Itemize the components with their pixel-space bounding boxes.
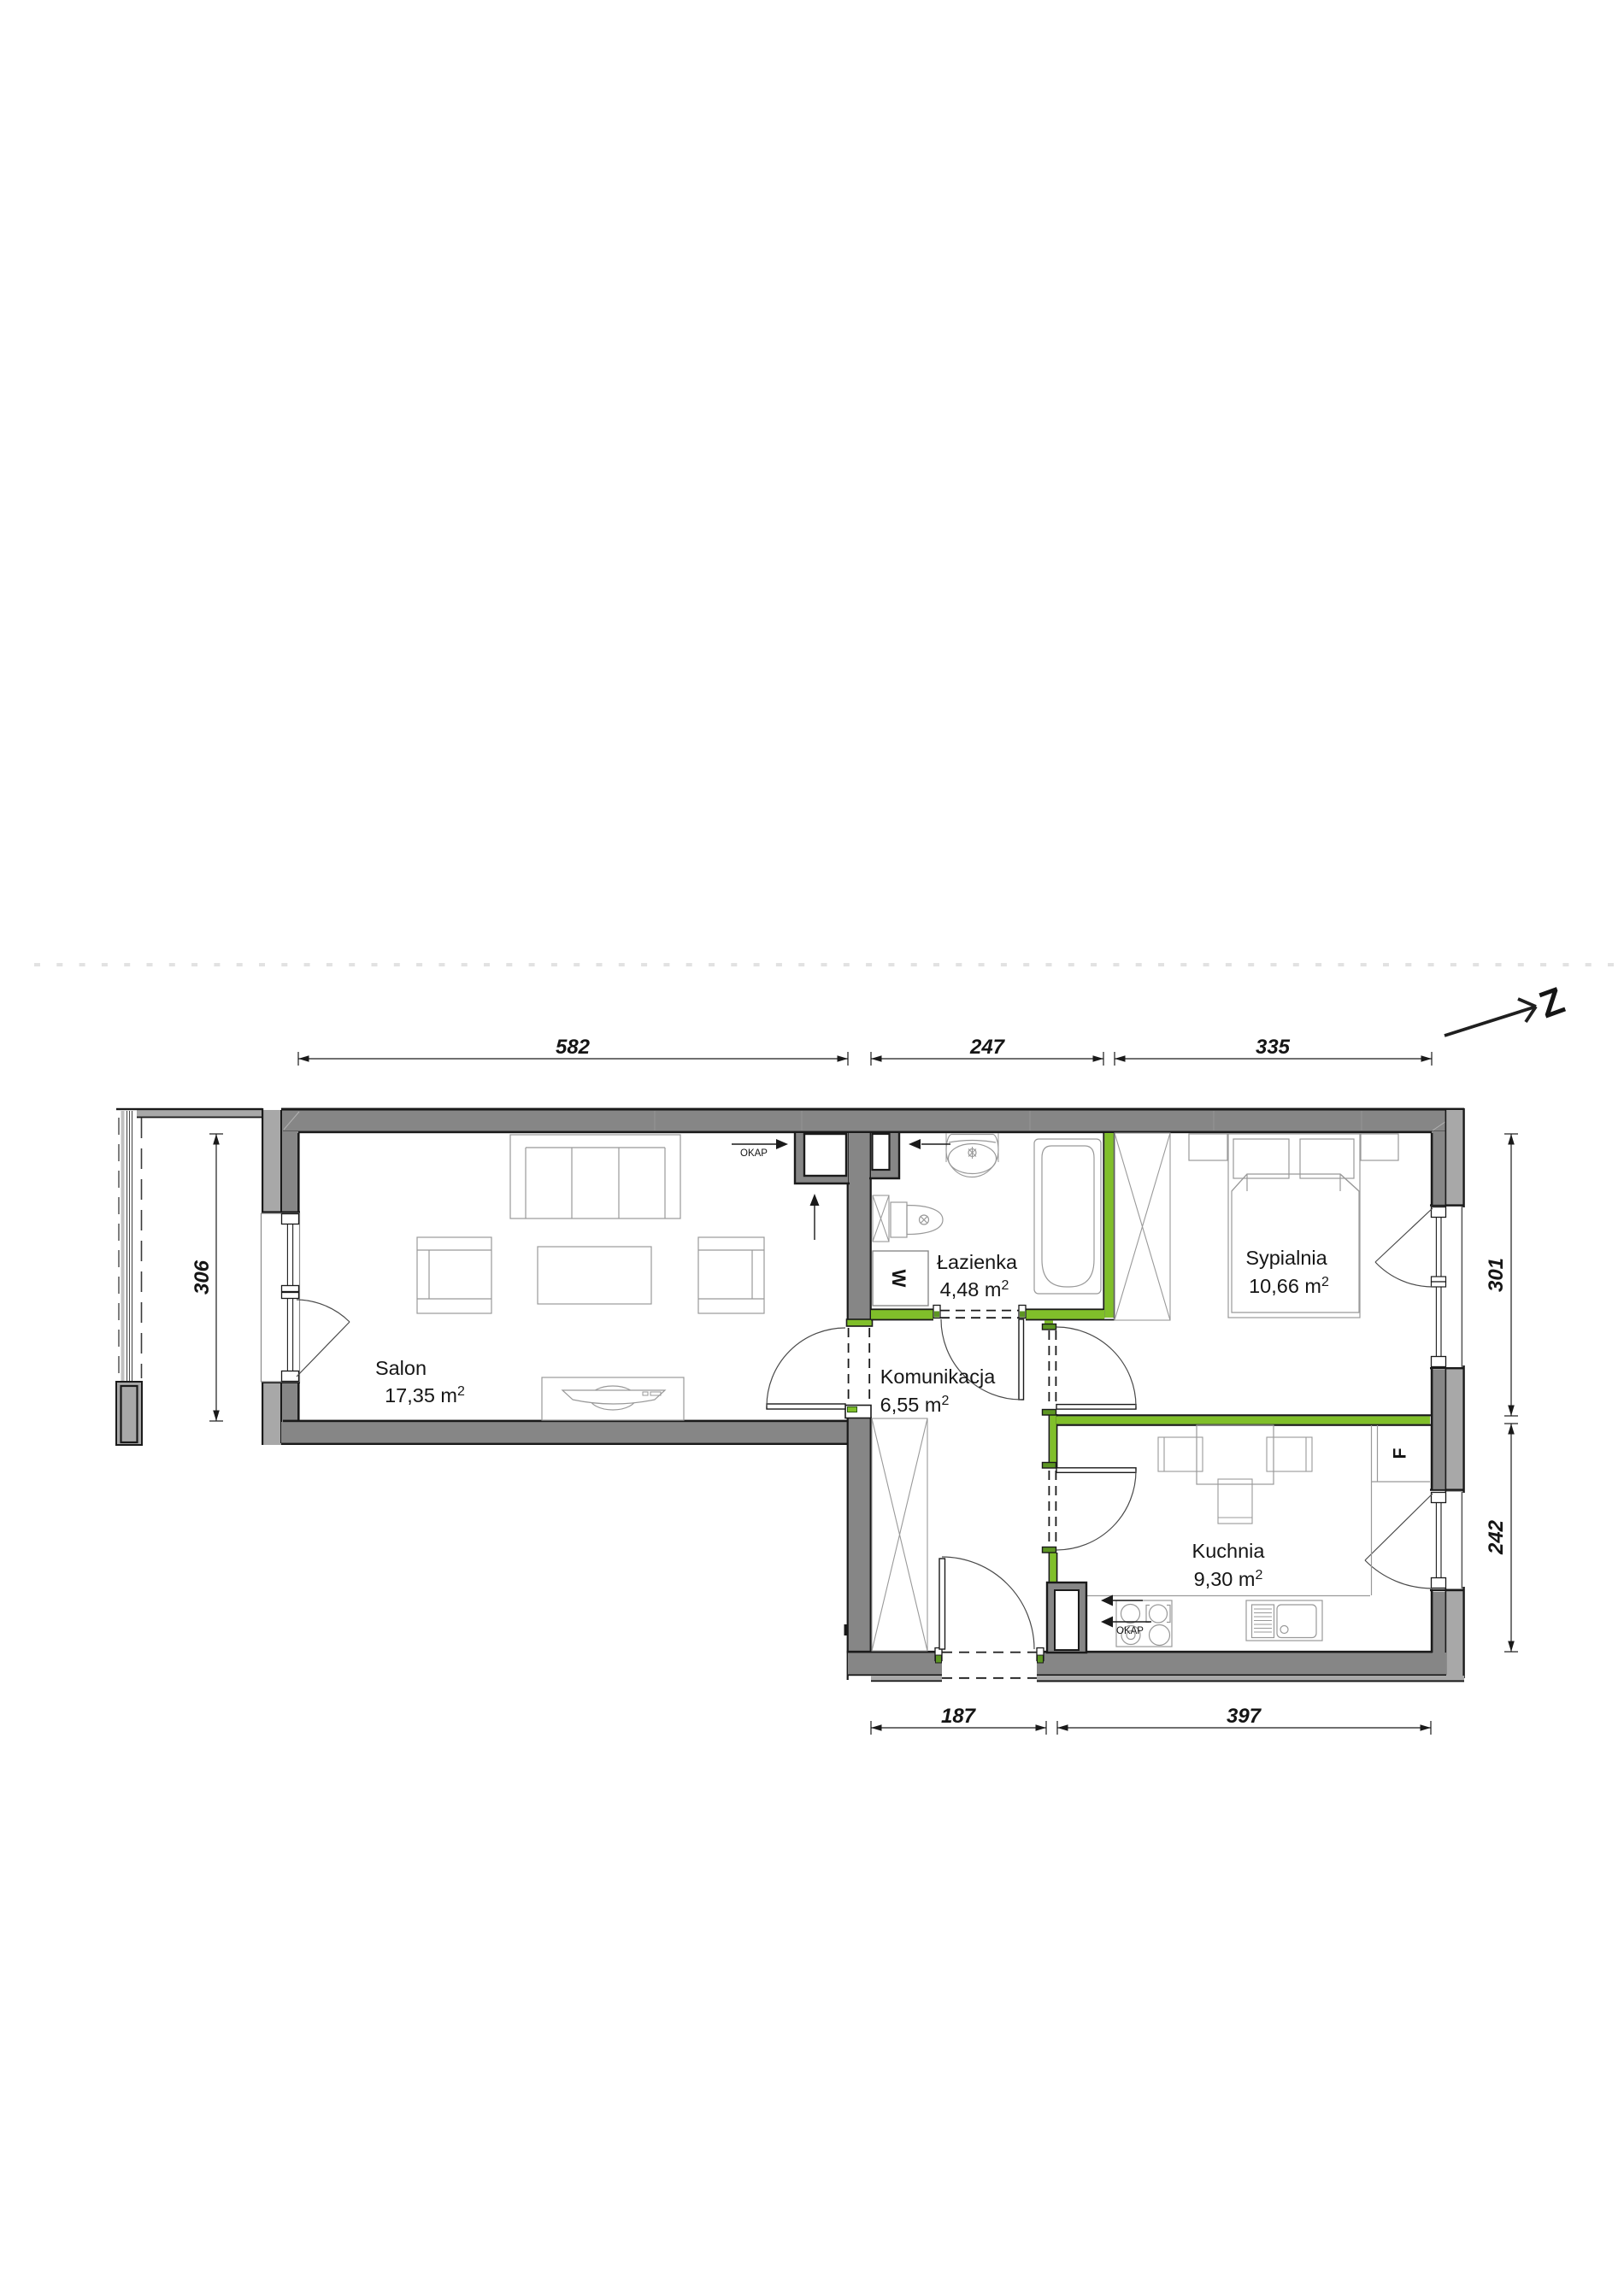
svg-text:OKAP: OKAP	[740, 1148, 768, 1159]
svg-text:Sypialnia: Sypialnia	[1245, 1247, 1327, 1269]
svg-text:OKAP: OKAP	[1116, 1626, 1144, 1636]
svg-text:Łazienka: Łazienka	[937, 1251, 1018, 1273]
svg-text:306: 306	[191, 1260, 214, 1295]
svg-text:Komunikacja: Komunikacja	[880, 1365, 996, 1388]
svg-text:247: 247	[969, 1036, 1006, 1059]
svg-text:10,66 m2: 10,66 m2	[1249, 1275, 1329, 1297]
svg-text:4,48 m2: 4,48 m2	[940, 1278, 1009, 1301]
svg-text:242: 242	[1485, 1519, 1508, 1555]
svg-text:582: 582	[556, 1036, 591, 1059]
svg-text:F: F	[1391, 1447, 1410, 1459]
svg-text:9,30 m2: 9,30 m2	[1194, 1568, 1263, 1590]
svg-text:187: 187	[941, 1705, 977, 1728]
svg-text:17,35 m2: 17,35 m2	[385, 1384, 465, 1406]
svg-text:6,55 m2: 6,55 m2	[880, 1394, 950, 1416]
svg-text:397: 397	[1227, 1705, 1262, 1728]
svg-text:Kuchnia: Kuchnia	[1192, 1540, 1266, 1562]
svg-text:335: 335	[1256, 1036, 1291, 1059]
svg-text:W: W	[888, 1270, 909, 1288]
svg-text:Salon: Salon	[375, 1357, 427, 1379]
svg-text:301: 301	[1485, 1258, 1508, 1292]
